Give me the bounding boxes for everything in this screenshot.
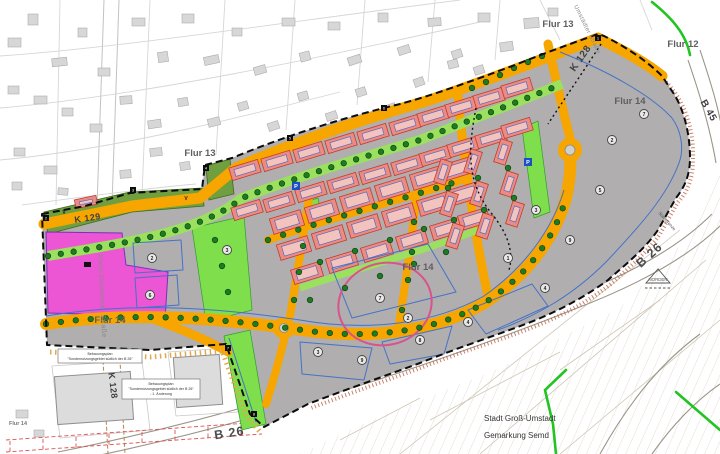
tree-icon <box>73 318 79 324</box>
existing-building <box>428 18 442 27</box>
existing-building <box>52 57 68 67</box>
tree-icon <box>445 185 451 191</box>
tree-icon <box>317 259 323 265</box>
tree-icon <box>524 95 530 101</box>
existing-building <box>413 77 425 88</box>
label-flur13-west: Flur 13 <box>184 148 215 159</box>
tree-icon <box>316 168 322 174</box>
label-city: Stadt Groß-Umstadt <box>484 414 556 423</box>
tree-icon <box>296 227 302 233</box>
existing-building <box>499 41 513 52</box>
parcel-number: 4 <box>467 320 470 326</box>
tree-icon <box>483 79 489 85</box>
tree-icon <box>433 185 439 191</box>
tree-icon <box>122 240 128 246</box>
tree-icon <box>353 157 359 163</box>
tree-icon <box>133 314 139 320</box>
existing-building <box>44 166 57 174</box>
existing-building <box>203 55 219 66</box>
existing-building <box>120 96 133 105</box>
existing-building <box>8 38 21 47</box>
existing-building <box>177 97 188 107</box>
existing-building <box>34 96 47 104</box>
roundabout-east-island <box>565 145 575 155</box>
tree-icon <box>486 297 492 303</box>
tree-icon <box>378 149 384 155</box>
tree-icon <box>469 85 475 91</box>
existing-building <box>58 188 68 196</box>
tree-icon <box>265 237 271 243</box>
cadastral-line <box>0 0 460 56</box>
tree-icon <box>291 297 297 303</box>
tree-icon <box>421 226 427 232</box>
tree-icon <box>473 305 479 311</box>
existing-building <box>148 119 162 129</box>
tree-icon <box>238 320 244 326</box>
tree-icon <box>326 217 332 223</box>
existing-building <box>325 110 338 121</box>
tree-icon <box>554 219 560 225</box>
tree-icon <box>505 165 511 171</box>
tree-icon <box>296 269 302 275</box>
tree-icon <box>372 204 378 210</box>
tree-icon <box>377 273 383 279</box>
tree-icon <box>539 245 545 251</box>
tree-icon <box>411 219 417 225</box>
tree-icon <box>497 72 503 78</box>
tree-icon <box>173 227 179 233</box>
existing-building <box>62 108 73 116</box>
parking-letter: P <box>526 160 530 166</box>
tree-icon <box>267 323 273 329</box>
tree-icon <box>148 314 154 320</box>
label-flur14-center: Flur 14 <box>402 262 434 273</box>
tree-icon <box>387 237 393 243</box>
tree-icon <box>387 330 393 336</box>
note1-line1: Bebauungsplan <box>88 352 113 356</box>
tree-icon <box>58 251 64 257</box>
tree-icon <box>297 327 303 333</box>
tree-icon <box>452 124 458 130</box>
development-plan-map: 263398472395271445632781PPVV NORDEN Beba… <box>0 0 720 454</box>
existing-building <box>328 22 340 30</box>
tree-icon <box>510 279 516 285</box>
tree-icon <box>282 325 288 331</box>
existing-building <box>150 147 163 156</box>
existing-building <box>237 101 249 111</box>
tree-icon <box>208 317 214 323</box>
tree-icon <box>530 257 536 263</box>
tree-icon <box>342 331 348 337</box>
tree-icon <box>459 311 465 317</box>
tree-icon <box>403 195 409 201</box>
tree-icon <box>403 141 409 147</box>
tree-icon <box>512 100 518 106</box>
tree-icon <box>312 329 318 335</box>
tree-icon <box>178 315 184 321</box>
tree-icon <box>500 105 506 111</box>
tree-icon <box>511 195 517 201</box>
cadastral-line <box>640 0 652 30</box>
tree-icon <box>418 190 424 196</box>
tree-icon <box>327 330 333 336</box>
tree-icon <box>279 181 285 187</box>
existing-building <box>524 17 540 28</box>
existing-building <box>179 161 190 171</box>
tree-icon <box>481 207 487 213</box>
tree-icon <box>549 85 555 91</box>
parcel-number: 2 <box>151 256 154 262</box>
tree-icon <box>88 316 94 322</box>
label-flur14-far-west: Flur 14 <box>9 421 28 427</box>
existing-building <box>378 13 388 22</box>
existing-building <box>267 120 280 131</box>
tree-icon <box>311 222 317 228</box>
parcel-number: 9 <box>361 358 364 364</box>
parcel-number: 7 <box>643 112 646 118</box>
tree-icon <box>280 232 286 238</box>
existing-building <box>182 14 194 23</box>
parcel-number: 2 <box>611 138 614 144</box>
tree-icon <box>291 177 297 183</box>
tree-icon <box>440 128 446 134</box>
existing-building <box>253 65 267 76</box>
existing-building <box>120 170 132 179</box>
tree-icon <box>255 189 261 195</box>
existing-building <box>98 68 110 76</box>
special-area-marker <box>84 262 91 267</box>
existing-building <box>132 18 145 26</box>
cadastral-line <box>216 0 225 155</box>
cadastral-line <box>428 0 435 82</box>
existing-building <box>28 14 38 25</box>
parcel-number: 7 <box>379 296 382 302</box>
existing-building <box>299 51 311 62</box>
note1-line2: "Sondernutzungsgebiet südlich der B 26" <box>67 357 133 361</box>
tree-icon <box>445 317 451 323</box>
tree-icon <box>221 208 227 214</box>
tree-icon <box>391 145 397 151</box>
tree-icon <box>537 90 543 96</box>
tree-icon <box>223 318 229 324</box>
existing-building <box>473 65 485 76</box>
tree-icon <box>304 172 310 178</box>
tree-icon <box>58 319 64 325</box>
tree-icon <box>242 194 248 200</box>
tree-icon <box>71 249 77 255</box>
label-flur12: Flur 12 <box>667 39 698 50</box>
tree-icon <box>232 201 238 207</box>
tree-icon <box>342 285 348 291</box>
parcel-number: 8 <box>419 338 422 344</box>
tree-icon <box>341 213 347 219</box>
parcel-number: 4 <box>544 286 547 292</box>
existing-building <box>478 13 490 22</box>
tree-icon <box>197 219 203 225</box>
existing-building <box>355 87 367 98</box>
tree-icon <box>428 133 434 139</box>
tree-icon <box>399 307 405 313</box>
existing-building <box>90 124 102 132</box>
existing-building <box>78 28 87 37</box>
tree-icon <box>431 321 437 327</box>
existing-building <box>16 410 28 418</box>
parcel-number: 5 <box>599 188 602 194</box>
note2-line3: - 1. Änderung <box>150 392 172 396</box>
existing-building <box>8 86 19 94</box>
tree-icon <box>253 321 259 327</box>
label-flur14-ne: Flur 14 <box>614 96 646 107</box>
existing-building <box>207 117 221 128</box>
tree-icon <box>464 119 470 125</box>
existing-building <box>157 51 168 62</box>
tree-icon <box>219 263 225 269</box>
tree-icon <box>209 214 215 220</box>
tree-icon <box>520 269 526 275</box>
tree-icon <box>387 199 393 205</box>
parcel-number: 2 <box>407 316 410 322</box>
tree-icon <box>402 328 408 334</box>
label-flur13-north: Flur 13 <box>542 19 573 30</box>
existing-building <box>297 91 309 101</box>
tree-icon <box>547 233 553 239</box>
tree-icon <box>307 297 313 303</box>
existing-building <box>451 49 463 60</box>
note2-line1: Bebauungsplan <box>149 382 174 386</box>
parking-letter: P <box>294 184 298 190</box>
map-canvas: 263398472395271445632781PPVV NORDEN Beba… <box>0 0 720 454</box>
tree-icon <box>84 247 90 253</box>
parcel-number: 3 <box>317 350 320 356</box>
tree-icon <box>135 237 141 243</box>
existing-building <box>232 28 242 36</box>
tree-icon <box>341 160 347 166</box>
tree-icon <box>163 315 169 321</box>
tree-icon <box>560 206 566 212</box>
north-label: NORDEN <box>648 277 667 282</box>
parcel-number: 3 <box>226 248 229 254</box>
tree-icon <box>96 244 102 250</box>
parcel-number: 6 <box>149 293 152 299</box>
tree-icon <box>488 109 494 115</box>
tree-icon <box>300 243 306 249</box>
label-district: Gemarkung Semd <box>484 431 549 440</box>
tree-icon <box>409 249 415 255</box>
cadastral-line <box>495 0 500 60</box>
tree-icon <box>451 217 457 223</box>
existing-building <box>14 148 25 156</box>
existing-building <box>282 18 295 26</box>
tree-icon <box>443 249 449 255</box>
tree-icon <box>352 248 358 254</box>
tree-icon <box>45 253 51 259</box>
tree-icon <box>498 289 504 295</box>
parcel-number: 1 <box>507 256 510 262</box>
tree-icon <box>357 208 363 214</box>
tree-icon <box>416 138 422 144</box>
tree-icon <box>225 289 231 295</box>
tree-icon <box>476 114 482 120</box>
tree-icon <box>193 316 199 322</box>
tree-icon <box>267 185 273 191</box>
tree-icon <box>417 325 423 331</box>
parcel-number: 3 <box>535 208 538 214</box>
tree-icon <box>109 242 115 248</box>
tree-icon <box>372 331 378 337</box>
cadastral-line <box>142 0 150 195</box>
parcel-number: 9 <box>569 238 572 244</box>
existing-building <box>447 59 459 69</box>
tree-icon <box>328 164 334 170</box>
tree-icon <box>366 153 372 159</box>
existing-building <box>397 44 411 55</box>
tree-icon <box>357 331 363 337</box>
tree-icon <box>405 277 411 283</box>
tree-icon <box>475 175 481 181</box>
tree-icon <box>160 231 166 237</box>
tree-icon <box>147 234 153 240</box>
existing-building <box>34 430 44 437</box>
existing-building <box>12 182 22 190</box>
tree-icon <box>185 223 191 229</box>
tree-icon <box>212 237 218 243</box>
note2-line2: "Sondernutzungsgebiet südlich der B 26" <box>128 387 194 391</box>
existing-building <box>548 8 558 16</box>
